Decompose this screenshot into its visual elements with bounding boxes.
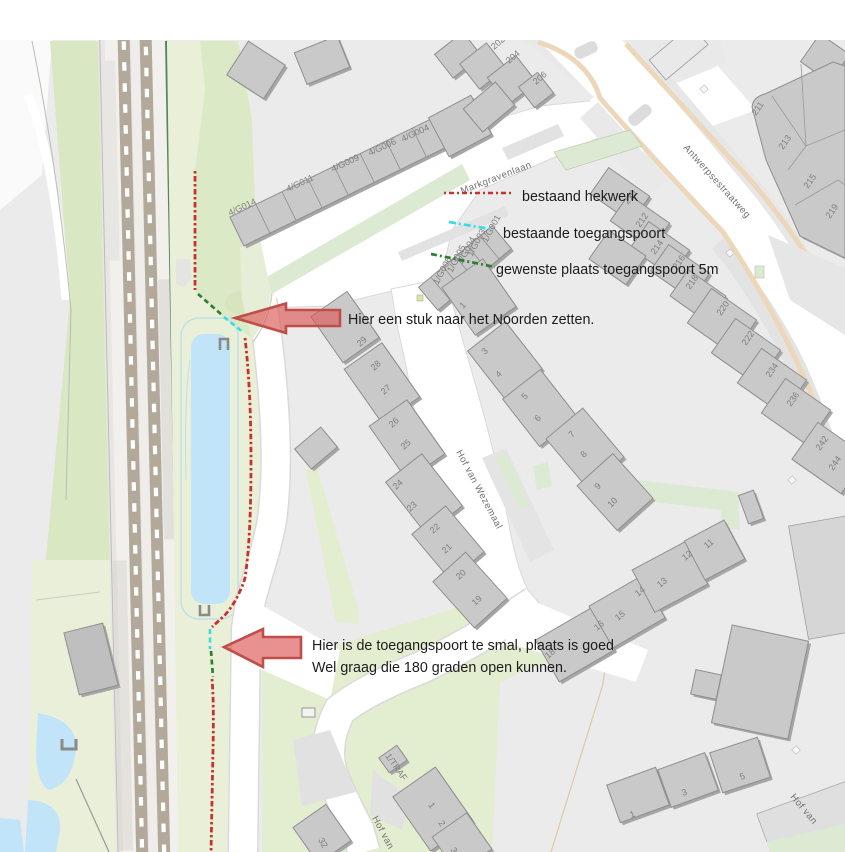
svg-text:bestaand hekwerk: bestaand hekwerk [522,189,639,205]
svg-text:Wel graag die 180 graden open: Wel graag die 180 graden open kunnen. [312,660,567,676]
svg-text:Hier is de toegangspoort te sm: Hier is de toegangspoort te smal, plaats… [312,638,614,654]
svg-text:Hier een stuk naar het Noorden: Hier een stuk naar het Noorden zetten. [348,312,594,328]
svg-text:bestaande toegangspoort: bestaande toegangspoort [503,226,665,242]
svg-text:gewenste plaats toegangspoort: gewenste plaats toegangspoort 5m [496,262,719,278]
